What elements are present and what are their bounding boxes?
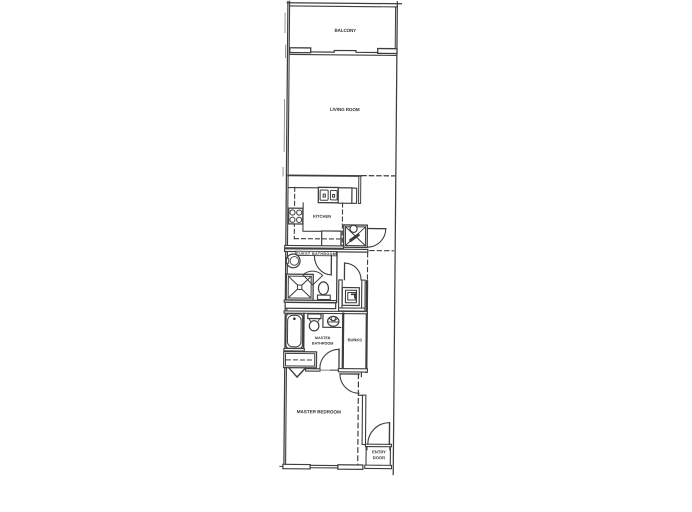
svg-text:KITCHEN: KITCHEN — [313, 214, 331, 219]
svg-text:MASTER: MASTER — [315, 336, 331, 340]
svg-text:GUEST BATHROOM: GUEST BATHROOM — [296, 252, 336, 256]
svg-text:BUNKS: BUNKS — [348, 337, 363, 342]
svg-text:BATHROOM: BATHROOM — [312, 341, 333, 345]
svg-text:DOOR: DOOR — [373, 455, 385, 460]
svg-text:BALCONY: BALCONY — [335, 28, 357, 33]
svg-text:MASTER BEDROOM: MASTER BEDROOM — [297, 409, 341, 414]
svg-text:LIVING ROOM: LIVING ROOM — [330, 107, 360, 112]
svg-text:ENTRY: ENTRY — [372, 449, 386, 454]
